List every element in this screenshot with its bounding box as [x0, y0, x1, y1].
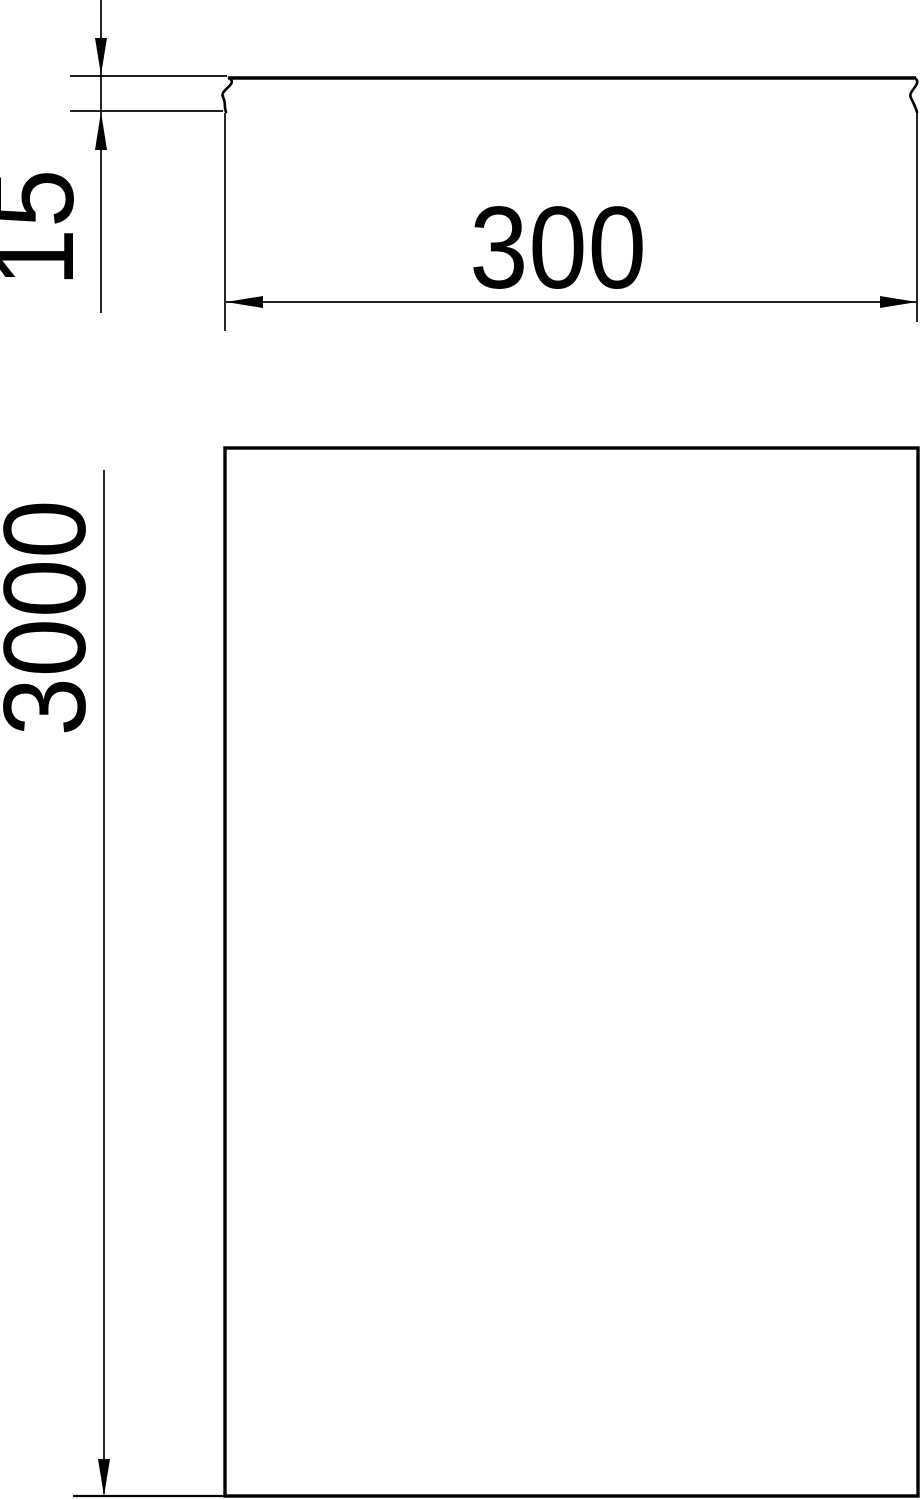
break-line-left [222, 78, 231, 112]
cross-section-view: 15 300 [0, 0, 917, 331]
dimension-drawing-canvas: 15 300 3000 [0, 0, 920, 1500]
length-dimension-label: 3000 [0, 500, 110, 737]
plan-view: 3000 [0, 448, 918, 1496]
arrowhead-down-icon [98, 1459, 110, 1496]
arrowhead-left-icon [226, 296, 263, 308]
break-line-right [910, 78, 917, 112]
arrowhead-down-icon [95, 38, 107, 75]
height-dimension-label: 15 [0, 169, 98, 287]
width-dimension-label: 300 [469, 182, 647, 313]
arrowhead-up-icon [95, 112, 107, 150]
technical-drawing-page: 15 300 3000 [0, 0, 920, 1500]
arrowhead-right-icon [880, 296, 917, 308]
cover-outline [225, 448, 918, 1496]
